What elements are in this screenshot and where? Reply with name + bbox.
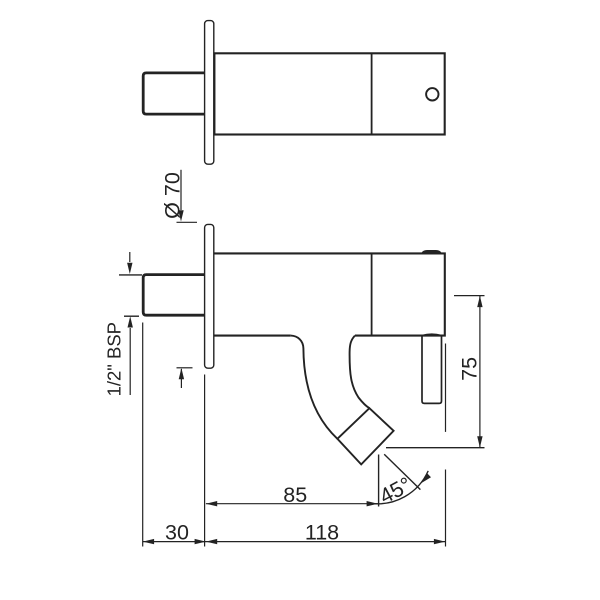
svg-text:118: 118 [305, 520, 339, 544]
svg-text:1/2" BSP: 1/2" BSP [103, 322, 124, 396]
svg-text:30: 30 [165, 520, 189, 544]
svg-text:75: 75 [457, 357, 481, 381]
svg-text:85: 85 [283, 483, 307, 507]
